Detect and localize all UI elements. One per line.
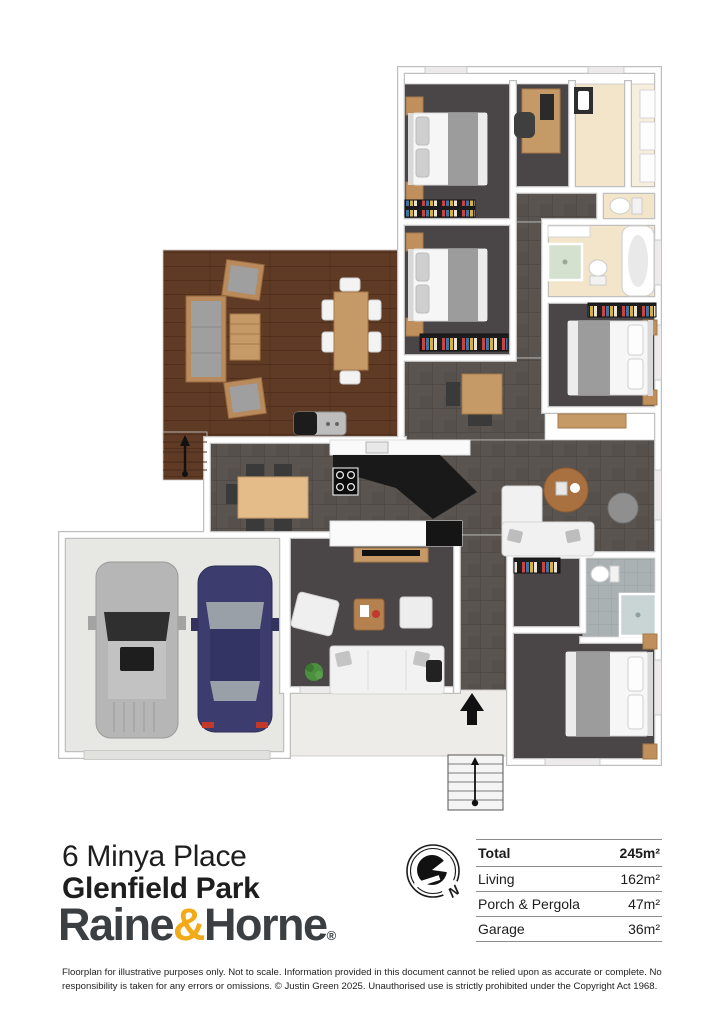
brand-name-right: Horne <box>204 899 327 950</box>
brand-ampersand: & <box>173 899 204 950</box>
area-label: Living <box>478 871 515 887</box>
armchair <box>608 493 638 523</box>
bed-icon <box>408 113 487 185</box>
area-value: 36m² <box>628 921 660 937</box>
tv-icon <box>362 550 420 556</box>
chair <box>468 414 492 426</box>
bedside-table <box>643 634 657 649</box>
address-line-1: 6 Minya Place <box>62 842 247 872</box>
vanity <box>548 226 590 237</box>
disclaimer-text: Floorplan for illustrative purposes only… <box>62 966 668 995</box>
stairs <box>448 755 503 810</box>
registered-mark: ® <box>327 928 337 943</box>
sink-icon <box>366 442 388 453</box>
hallway-vertical <box>513 222 545 358</box>
area-value: 162m² <box>620 871 660 887</box>
bookshelf <box>588 303 656 317</box>
ottoman <box>400 597 432 628</box>
stove-icon <box>333 468 358 495</box>
north-compass-icon: N <box>402 841 468 907</box>
porch <box>287 690 530 756</box>
car-sedan <box>191 566 279 732</box>
floorplan-sheet: 6 Minya Place Glenfield Park Raine&Horne… <box>0 0 725 1024</box>
linen-shelves <box>640 90 655 182</box>
entry-hall <box>457 535 510 690</box>
hallway-top <box>513 190 600 222</box>
garage-door <box>84 751 270 760</box>
bbq-icon <box>294 412 346 435</box>
areas-table: Total 245m² Living 162m² Porch & Pergola… <box>476 839 662 942</box>
area-label: Garage <box>478 921 525 937</box>
wardrobe-shelf <box>514 558 560 573</box>
computer <box>540 94 554 120</box>
table-row: Porch & Pergola 47m² <box>476 891 662 916</box>
area-label: Porch & Pergola <box>478 896 580 912</box>
table <box>462 374 502 414</box>
brand-name-left: Raine <box>58 899 173 950</box>
bed-icon <box>568 320 653 396</box>
side-table <box>230 314 260 360</box>
outdoor-armchair <box>224 378 267 419</box>
toilet-icon <box>610 198 642 214</box>
area-label: Total <box>478 845 510 861</box>
toilet-icon <box>591 566 619 582</box>
floorplan-drawing <box>0 0 725 828</box>
bed-icon <box>408 249 487 321</box>
table-row: Garage 36m² <box>476 916 662 942</box>
chair <box>446 382 460 406</box>
office-chair <box>514 112 535 138</box>
kitchen-bench <box>330 440 470 455</box>
dining-table <box>238 477 308 518</box>
car-suv <box>88 562 186 738</box>
outdoor-armchair <box>222 260 265 301</box>
bookshelf <box>405 200 475 217</box>
toilet-icon <box>589 260 607 285</box>
bedside-table <box>643 744 657 759</box>
bedside-table <box>406 233 423 251</box>
table-row: Living 162m² <box>476 866 662 891</box>
area-value: 47m² <box>628 896 660 912</box>
outdoor-table <box>334 292 368 370</box>
bedside-table <box>406 97 423 115</box>
console-table <box>558 414 626 428</box>
bookshelf <box>420 334 508 351</box>
cabinet <box>426 521 462 546</box>
area-value: 245m² <box>620 845 660 861</box>
table-row: Total 245m² <box>476 839 662 866</box>
dark-planter <box>426 660 442 682</box>
bed-icon <box>566 652 653 736</box>
brand-logo: Raine&Horne® <box>58 902 336 947</box>
